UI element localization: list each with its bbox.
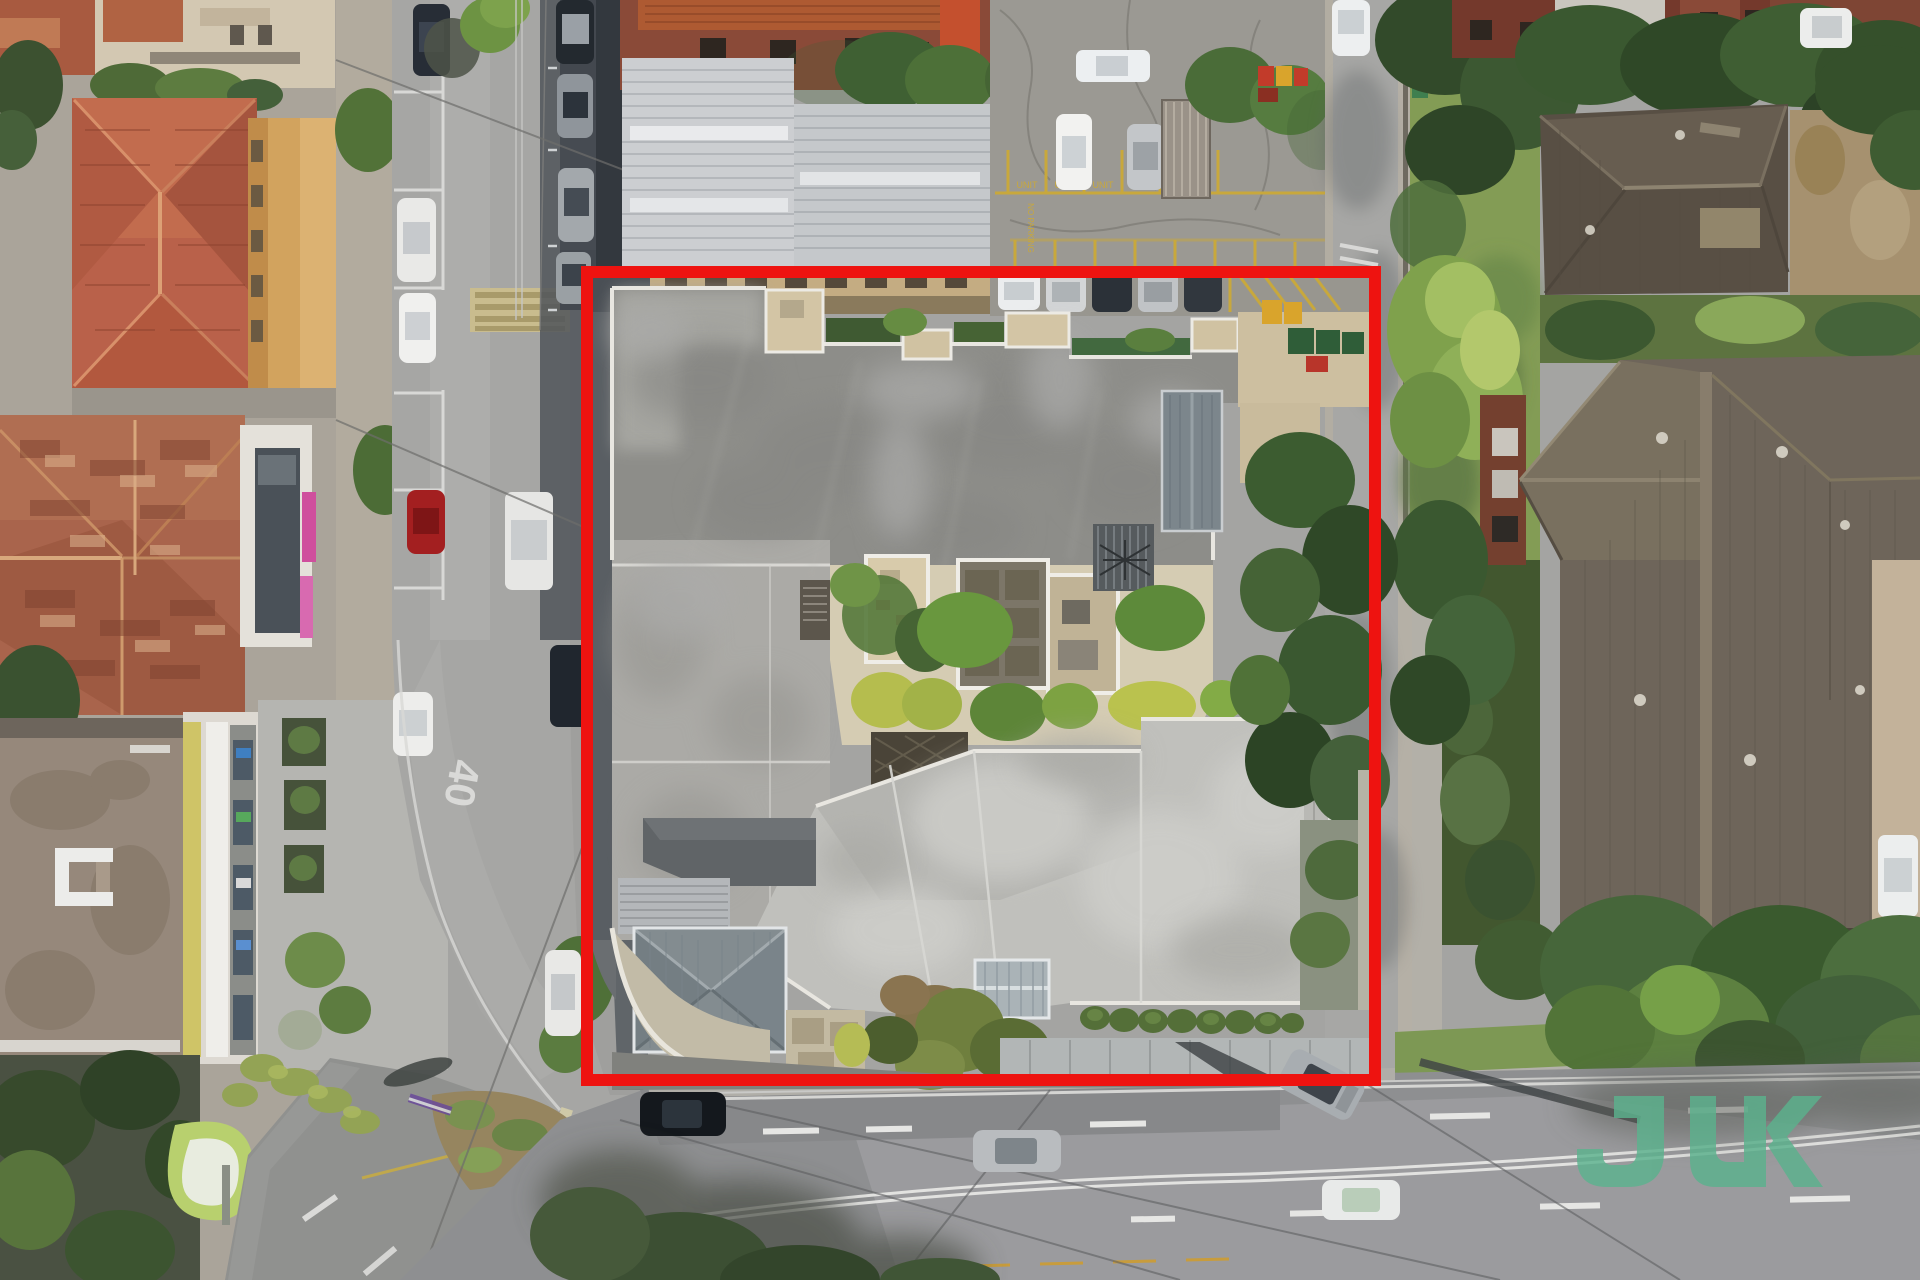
- svg-text:UNIT: UNIT: [1093, 180, 1114, 190]
- svg-text:40: 40: [435, 756, 489, 810]
- svg-text:NO PARKING: NO PARKING: [1026, 203, 1035, 253]
- svg-text:UNIT: UNIT: [1017, 180, 1038, 190]
